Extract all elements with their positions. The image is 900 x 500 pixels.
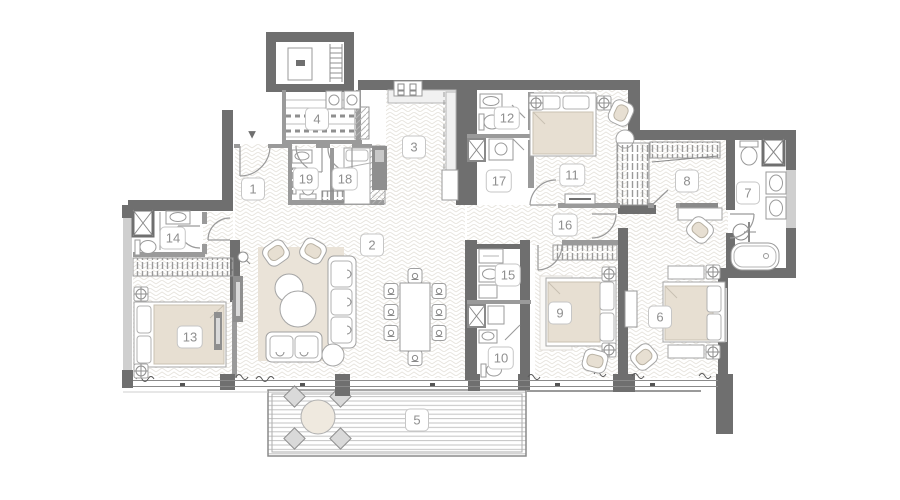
elevator-core: [266, 32, 354, 92]
room-label-2: 2: [360, 234, 384, 257]
room-label-4: 4: [305, 108, 329, 131]
wardrobe: [133, 258, 233, 276]
room-label-3: 3: [402, 136, 426, 159]
room-label-17: 17: [486, 170, 512, 193]
stairs-ladder: [330, 44, 342, 82]
nightstand-bottom: [668, 345, 704, 358]
room-label-15: 15: [495, 264, 521, 287]
floor-plan: 12345678910111213141516171819 ▼: [0, 0, 900, 500]
room-label-5: 5: [405, 409, 429, 432]
side-table: [322, 344, 344, 366]
coffee-table-2: [280, 291, 316, 327]
entry-arrow: ▼: [246, 128, 259, 141]
wardrobe: [553, 245, 617, 260]
duct-shaft-2: [355, 107, 369, 139]
floor-plan-drawing: [0, 0, 900, 500]
room-label-16: 16: [552, 214, 578, 237]
room-label-6: 6: [648, 306, 672, 329]
dryer: [344, 91, 360, 109]
washer: [326, 91, 342, 109]
room-label-1: 1: [241, 178, 265, 201]
room-label-7: 7: [736, 182, 760, 205]
toilet: [140, 241, 156, 254]
bedroom-13-furniture: [133, 258, 233, 378]
washer: [489, 139, 513, 160]
room-label-14: 14: [160, 227, 186, 250]
toilet: [741, 147, 757, 165]
room-label-12: 12: [494, 107, 520, 130]
radiator: [322, 191, 344, 202]
dresser: [625, 291, 637, 327]
dining-table: [400, 283, 430, 351]
nightstand-top: [668, 266, 704, 279]
room-label-8: 8: [675, 170, 699, 193]
kitchen-island: [442, 170, 458, 200]
room-label-11: 11: [559, 164, 585, 187]
hanging-rod: [680, 203, 718, 208]
room-label-10: 10: [488, 347, 514, 370]
room-label-13: 13: [177, 326, 203, 349]
room-label-19: 19: [293, 168, 319, 191]
room-label-9: 9: [548, 302, 572, 325]
room-label-18: 18: [332, 168, 358, 191]
